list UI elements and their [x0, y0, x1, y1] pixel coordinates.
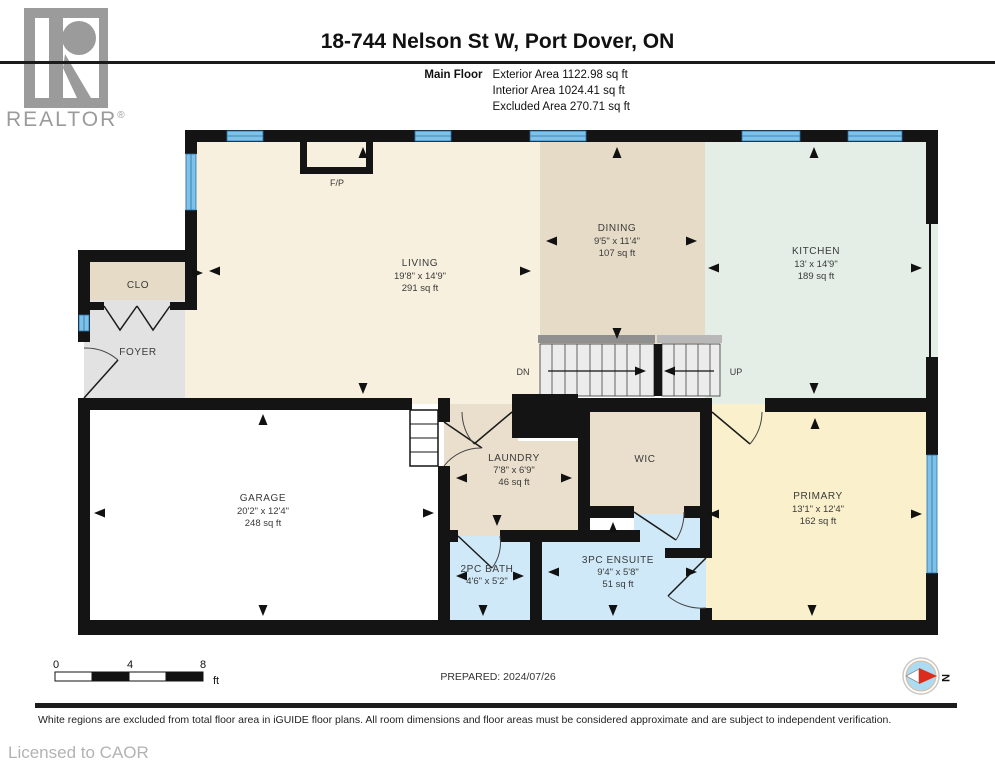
room-bath-name: 2PC BATH [461, 564, 514, 575]
window [530, 131, 586, 141]
room-closet-name: CLO [127, 280, 149, 291]
compass-icon: N [903, 658, 951, 694]
room-kitchen-dims: 13' x 14'9" [794, 259, 837, 270]
room-living-dims: 19'8" x 14'9" [394, 271, 446, 282]
window [742, 131, 800, 141]
room-foyer-name: FOYER [119, 347, 156, 358]
room-laundry-area: 46 sq ft [498, 477, 530, 488]
floor-plan-page: REALTOR® 18-744 Nelson St W, Port Dover,… [0, 0, 995, 768]
room-garage-dims: 20'2" x 12'4" [237, 506, 289, 517]
window [415, 131, 451, 141]
room-primary-floor [706, 404, 932, 626]
room-kitchen-name: KITCHEN [792, 246, 840, 257]
stairs-down-label: DN [517, 367, 530, 377]
room-fills [84, 135, 938, 626]
room-living-area: 291 sq ft [402, 283, 439, 294]
room-living-name: LIVING [402, 258, 438, 269]
window [848, 131, 902, 141]
scale-tick-8: 8 [200, 659, 206, 671]
garage-steps [410, 410, 438, 466]
window [927, 455, 937, 573]
license-text: Licensed to CAOR [8, 743, 149, 763]
window [79, 315, 89, 331]
fireplace-label: F/P [330, 178, 344, 188]
room-laundry-dims: 7'8" x 6'9" [493, 465, 535, 476]
room-primary-area: 162 sq ft [800, 516, 837, 527]
compass-north-label: N [939, 674, 951, 682]
room-wic-name: WIC [634, 454, 655, 465]
prepared-date: PREPARED: 2024/07/26 [398, 671, 598, 683]
room-primary-name: PRIMARY [793, 491, 843, 502]
scale-unit: ft [213, 675, 219, 687]
room-living-floor [185, 135, 545, 410]
room-ensuite-name: 3PC ENSUITE [582, 555, 654, 566]
floor-plan-drawing: LIVING 19'8" x 14'9" 291 sq ft DINING 9'… [0, 0, 995, 768]
room-laundry-name: LAUNDRY [488, 453, 540, 464]
room-bath-dims: 4'6" x 5'2" [466, 576, 508, 587]
room-garage-name: GARAGE [240, 493, 286, 504]
room-ensuite-dims: 9'4" x 5'8" [597, 567, 639, 578]
room-kitchen-area: 189 sq ft [798, 271, 835, 282]
room-dining-name: DINING [598, 223, 637, 234]
footer-divider [35, 703, 957, 708]
stair-railing [538, 335, 655, 343]
stair-railing [657, 335, 722, 343]
scale-tick-0: 0 [53, 659, 59, 671]
scale-bar: 0 4 8 ft [53, 659, 219, 687]
room-garage-area: 248 sq ft [245, 518, 282, 529]
staircase [538, 335, 722, 396]
room-dining-dims: 9'5" x 11'4" [594, 236, 640, 247]
room-dining-area: 107 sq ft [599, 248, 636, 259]
stairs-up-label: UP [730, 367, 743, 377]
disclaimer-text: White regions are excluded from total fl… [38, 714, 968, 726]
room-ensuite-area: 51 sq ft [602, 579, 634, 590]
scale-tick-4: 4 [127, 659, 133, 671]
window [227, 131, 263, 141]
room-primary-dims: 13'1" x 12'4" [792, 504, 844, 515]
window [186, 154, 196, 210]
